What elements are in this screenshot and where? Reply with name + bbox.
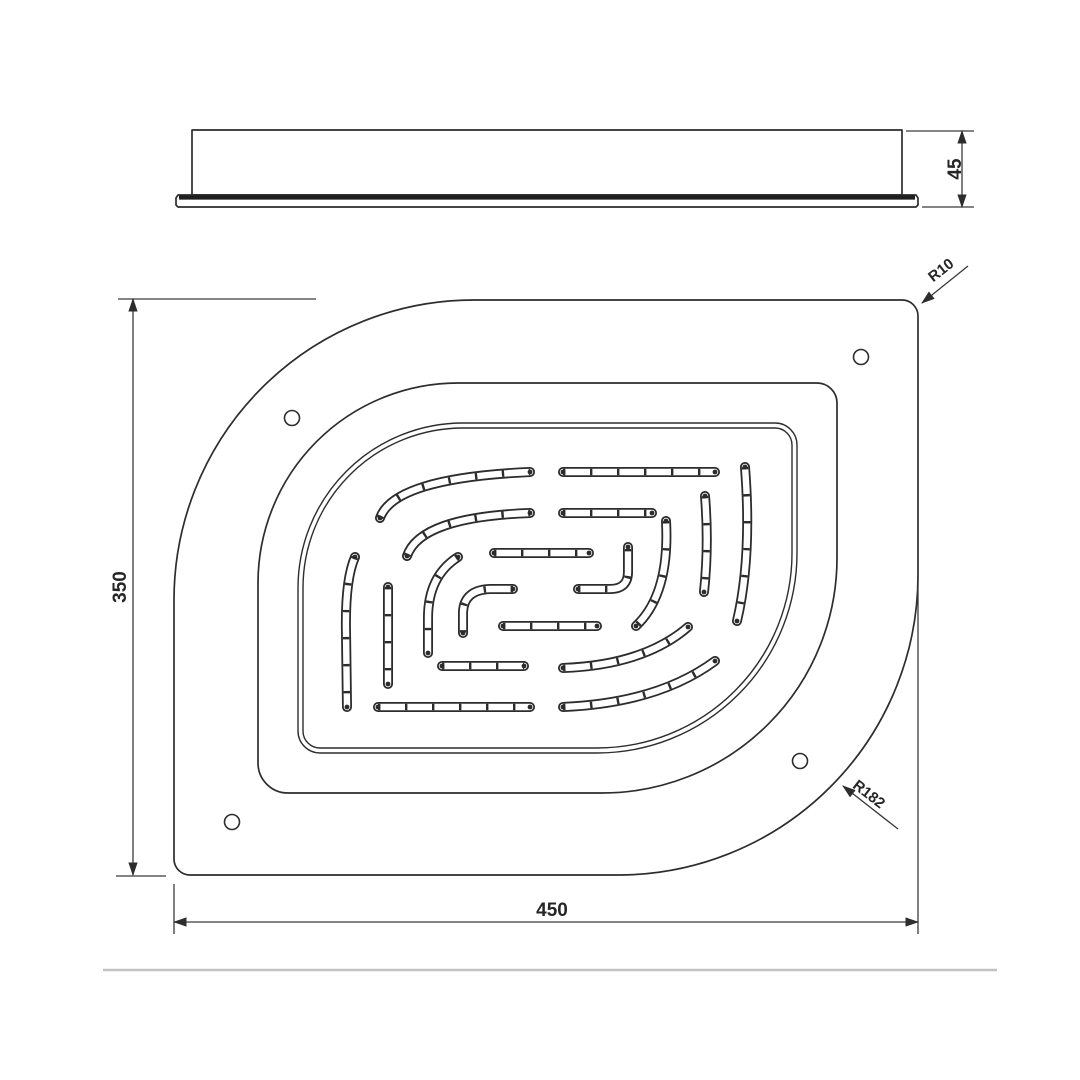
slot-end-dot bbox=[650, 511, 655, 516]
slot-end-dot bbox=[702, 590, 707, 595]
slot-end-dot bbox=[735, 619, 740, 624]
spray-panel-outer-border bbox=[298, 423, 797, 753]
slot-end-dot bbox=[511, 587, 516, 592]
slot-end-dot bbox=[561, 666, 566, 671]
drawing-page: 45 350 450 R10 R182 bbox=[0, 0, 1080, 1080]
screw-hole-top-left bbox=[285, 411, 300, 426]
slot-end-dot bbox=[528, 511, 533, 516]
slot-end-dot bbox=[405, 554, 410, 559]
slot-end-dot bbox=[386, 682, 391, 687]
plate-outer-contour bbox=[174, 300, 918, 875]
slot-end-dot bbox=[440, 664, 445, 669]
slot-end-dot bbox=[561, 470, 566, 475]
slot-end-dot bbox=[634, 624, 639, 629]
slot-end-dot bbox=[595, 624, 600, 629]
dimension-label-width: 450 bbox=[536, 900, 568, 921]
slot-end-dot bbox=[528, 705, 533, 710]
slot-end-dot bbox=[426, 651, 431, 656]
slot-end-dot bbox=[703, 494, 708, 499]
dimension-label-thickness: 45 bbox=[945, 158, 966, 180]
plan-view bbox=[174, 300, 918, 875]
slot-end-dot bbox=[522, 664, 527, 669]
slot-end-dot bbox=[345, 705, 350, 710]
technical-drawing: 45 350 450 R10 R182 bbox=[0, 0, 1080, 1080]
slot-end-dot bbox=[743, 465, 748, 470]
slot-end-dot bbox=[461, 631, 466, 636]
dimension-annotations: 45 350 450 R10 R182 bbox=[110, 131, 974, 934]
screw-hole-top-right bbox=[854, 350, 869, 365]
slot-end-dot bbox=[378, 516, 383, 521]
slot-end-dot bbox=[561, 511, 566, 516]
slot-end-dot bbox=[686, 625, 691, 630]
screw-hole-bottom-right bbox=[793, 754, 808, 769]
slot-end-dot bbox=[626, 545, 631, 550]
slot-end-dot bbox=[501, 624, 506, 629]
slot-end-dot bbox=[353, 555, 358, 560]
slot-end-dot bbox=[528, 470, 533, 475]
screw-hole-bottom-left bbox=[225, 815, 240, 830]
dimension-label-height: 350 bbox=[110, 571, 131, 603]
radius-label-small: R10 bbox=[925, 255, 957, 285]
slot-end-dot bbox=[713, 659, 718, 664]
slot-end-dot bbox=[576, 587, 581, 592]
side-view bbox=[176, 130, 918, 207]
side-view-body bbox=[192, 130, 902, 195]
slot-end-dot bbox=[561, 705, 566, 710]
slot-end-dot bbox=[492, 551, 497, 556]
slot-end-dot bbox=[664, 519, 669, 524]
slot-end-dot bbox=[376, 705, 381, 710]
spray-panel-inner-border bbox=[303, 428, 792, 748]
slot-end-dot bbox=[386, 585, 391, 590]
slot-end-dot bbox=[713, 470, 718, 475]
slot-end-dot bbox=[456, 555, 461, 560]
slot-end-dot bbox=[587, 551, 592, 556]
nozzle-slot-maze bbox=[345, 465, 748, 710]
